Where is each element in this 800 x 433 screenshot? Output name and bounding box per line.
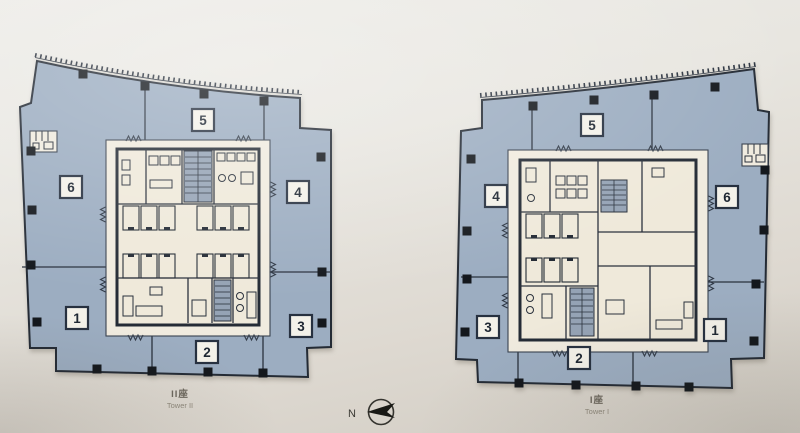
tower-2-core xyxy=(117,149,259,325)
tower-1-caption-cn: I座 xyxy=(590,394,604,406)
floor-plans-canvas: 5 6 4 1 2 3 xyxy=(0,0,800,433)
tower-1-edge-unit xyxy=(742,144,768,166)
zone-number: 1 xyxy=(73,311,81,326)
zone-number: 6 xyxy=(723,190,731,205)
tower-2-plan: 5 6 4 1 2 3 xyxy=(20,55,331,378)
zone-number: 3 xyxy=(297,319,305,334)
zone-number: 2 xyxy=(575,351,583,366)
zone-number: 1 xyxy=(711,323,719,338)
tower-1-core-stair-top xyxy=(601,180,627,212)
tower-2-core-stair-top xyxy=(184,151,212,202)
tower-2-caption-cn: II座 xyxy=(171,388,189,400)
floor-plan-photo: 5 6 4 1 2 3 xyxy=(0,0,800,433)
tower-1-core xyxy=(520,160,696,340)
zone-number: 3 xyxy=(484,320,492,335)
tower-1-caption-en: Tower I xyxy=(585,407,609,416)
north-label: N xyxy=(348,408,356,420)
tower-2-caption: II座 Tower II xyxy=(167,388,193,410)
north-arrow: N xyxy=(348,400,395,425)
zone-number: 5 xyxy=(199,113,207,128)
zone-number: 4 xyxy=(294,185,302,200)
tower-1-caption: I座 Tower I xyxy=(585,394,609,416)
tower-1-plan: 5 4 6 3 2 1 xyxy=(456,64,770,392)
zone-number: 5 xyxy=(588,118,596,133)
zone-number: 6 xyxy=(67,180,75,195)
tower-2-caption-en: Tower II xyxy=(167,401,193,410)
tower-2-core-stair-bottom xyxy=(214,280,231,321)
zone-number: 4 xyxy=(492,189,500,204)
tower-1-core-stair-bottom xyxy=(570,288,594,336)
zone-number: 2 xyxy=(203,345,211,360)
